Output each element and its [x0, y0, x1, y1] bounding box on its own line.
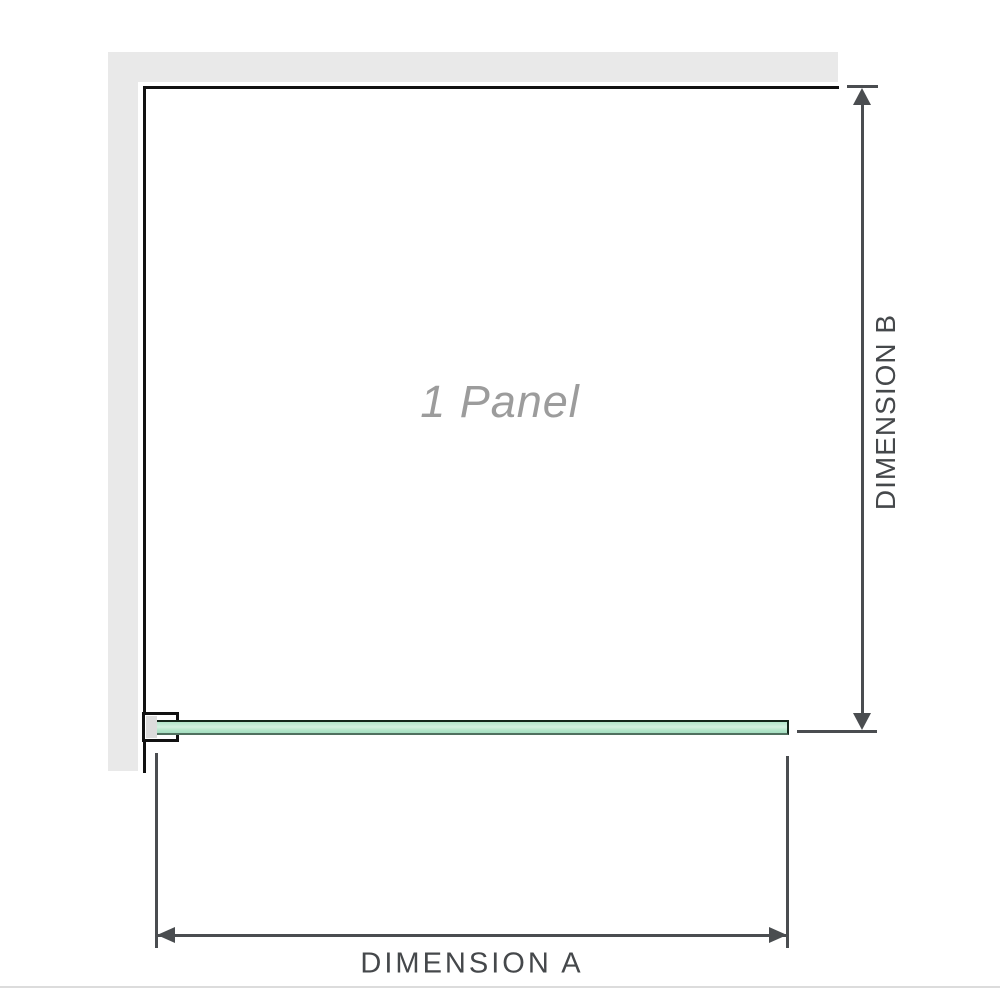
dimension-b-arrow-up-icon — [853, 88, 871, 105]
panel-count-label: 1 Panel — [420, 376, 580, 428]
panel-outline-top — [143, 86, 839, 89]
dimension-a-line — [157, 934, 787, 937]
dimension-b-label: DIMENSION B — [870, 314, 902, 510]
dimension-a-arrow-right-icon — [769, 927, 787, 943]
dimension-a-left-extension — [155, 753, 158, 948]
dimension-a-arrow-left-icon — [157, 927, 175, 943]
wall-left-strip — [108, 52, 138, 771]
dimension-a-label: DIMENSION A — [360, 948, 583, 981]
dimension-b-line — [861, 95, 864, 725]
dimension-b-bottom-tick — [797, 730, 877, 733]
wall-top-strip — [108, 52, 838, 82]
wall-bracket-shade — [146, 716, 157, 738]
panel-outline-left — [143, 86, 146, 773]
page-divider-line — [0, 986, 1000, 988]
dimension-a-right-extension — [786, 756, 789, 948]
dimension-b-arrow-down-icon — [853, 713, 871, 730]
diagram-canvas: 1 Panel DIMENSION B DIMENSION A — [0, 0, 1000, 1000]
glass-panel — [157, 720, 789, 735]
